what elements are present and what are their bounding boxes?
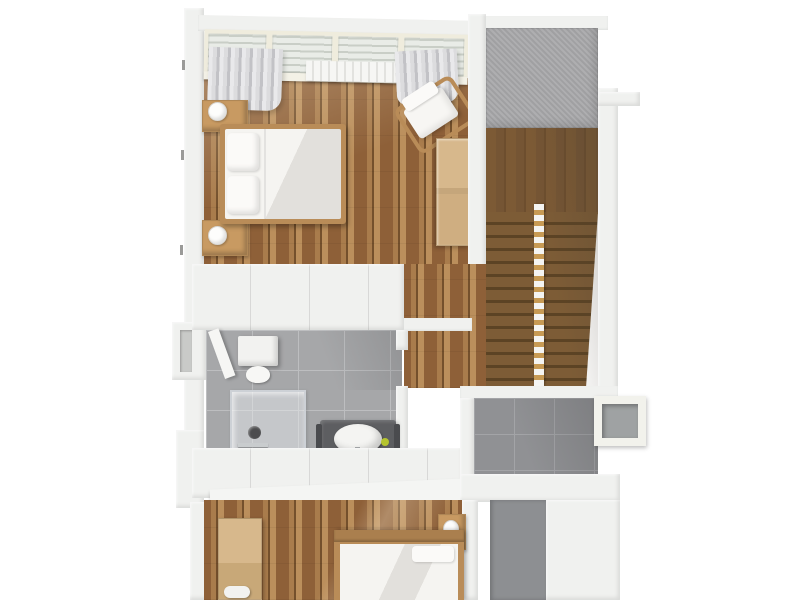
bathroom-wall-shadow	[300, 330, 402, 390]
side-window-glass	[602, 404, 638, 438]
wall-slit	[180, 245, 183, 255]
wall-roof-right	[598, 92, 640, 106]
bed-second	[334, 530, 464, 600]
toilet-cistern	[238, 336, 278, 366]
floorplan-render	[0, 0, 800, 600]
roof-terrace	[486, 28, 598, 128]
wardrobe	[436, 138, 470, 246]
stair-flight-left	[486, 212, 536, 386]
headboard	[334, 530, 464, 542]
wall-slit	[181, 150, 184, 160]
toilet-bowl	[246, 366, 270, 383]
exterior-wall-left	[184, 8, 204, 472]
door-lintel	[402, 318, 472, 331]
bed-master	[220, 124, 346, 224]
wall-band-upper	[192, 264, 404, 330]
stair-flight-right	[544, 212, 598, 386]
shower-faucet	[238, 443, 268, 447]
shower-drain	[248, 426, 261, 439]
pillow	[227, 176, 259, 214]
wall-niche-slot	[180, 330, 192, 372]
table-lamp	[208, 102, 227, 121]
utility-room-shadow	[474, 398, 598, 476]
wall-slit	[182, 60, 185, 70]
pillow	[227, 133, 259, 171]
duvet-fold	[264, 129, 266, 219]
side-window	[594, 396, 646, 446]
pillow	[412, 546, 454, 562]
wall-bottom-right	[546, 500, 620, 600]
table-lamp	[208, 226, 227, 245]
cut-wall-face	[490, 500, 546, 600]
stair-landing	[486, 128, 598, 214]
soap-accent	[381, 438, 389, 446]
white-stool	[224, 586, 250, 598]
utility-wall-bottom	[460, 474, 620, 502]
exterior-wall-right	[598, 88, 618, 392]
stair-railing	[534, 204, 544, 386]
bathroom-wall-right	[396, 330, 408, 350]
